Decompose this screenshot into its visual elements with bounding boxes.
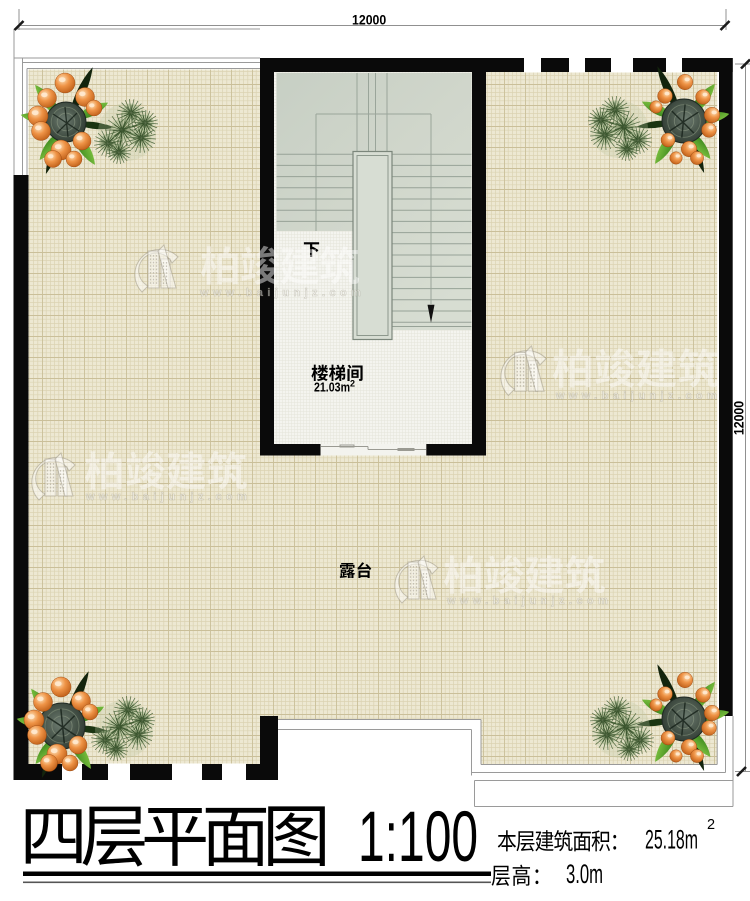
- svg-text:www.baijunjz.com: www.baijunjz.com: [555, 390, 721, 402]
- svg-text:12000: 12000: [352, 12, 386, 28]
- svg-text:25.18m: 25.18m: [645, 824, 698, 854]
- svg-text:www.baijunjz.com: www.baijunjz.com: [199, 287, 365, 299]
- svg-text:3.0m: 3.0m: [566, 859, 603, 889]
- svg-text:1:100: 1:100: [358, 797, 478, 877]
- svg-text:21.03m: 21.03m: [314, 381, 350, 395]
- svg-text:2: 2: [350, 379, 355, 389]
- svg-text:www.baijunjz.com: www.baijunjz.com: [85, 491, 251, 503]
- svg-text:www.baijunjz.com: www.baijunjz.com: [446, 595, 612, 607]
- svg-text:2: 2: [707, 817, 715, 833]
- svg-text:12000: 12000: [731, 401, 747, 435]
